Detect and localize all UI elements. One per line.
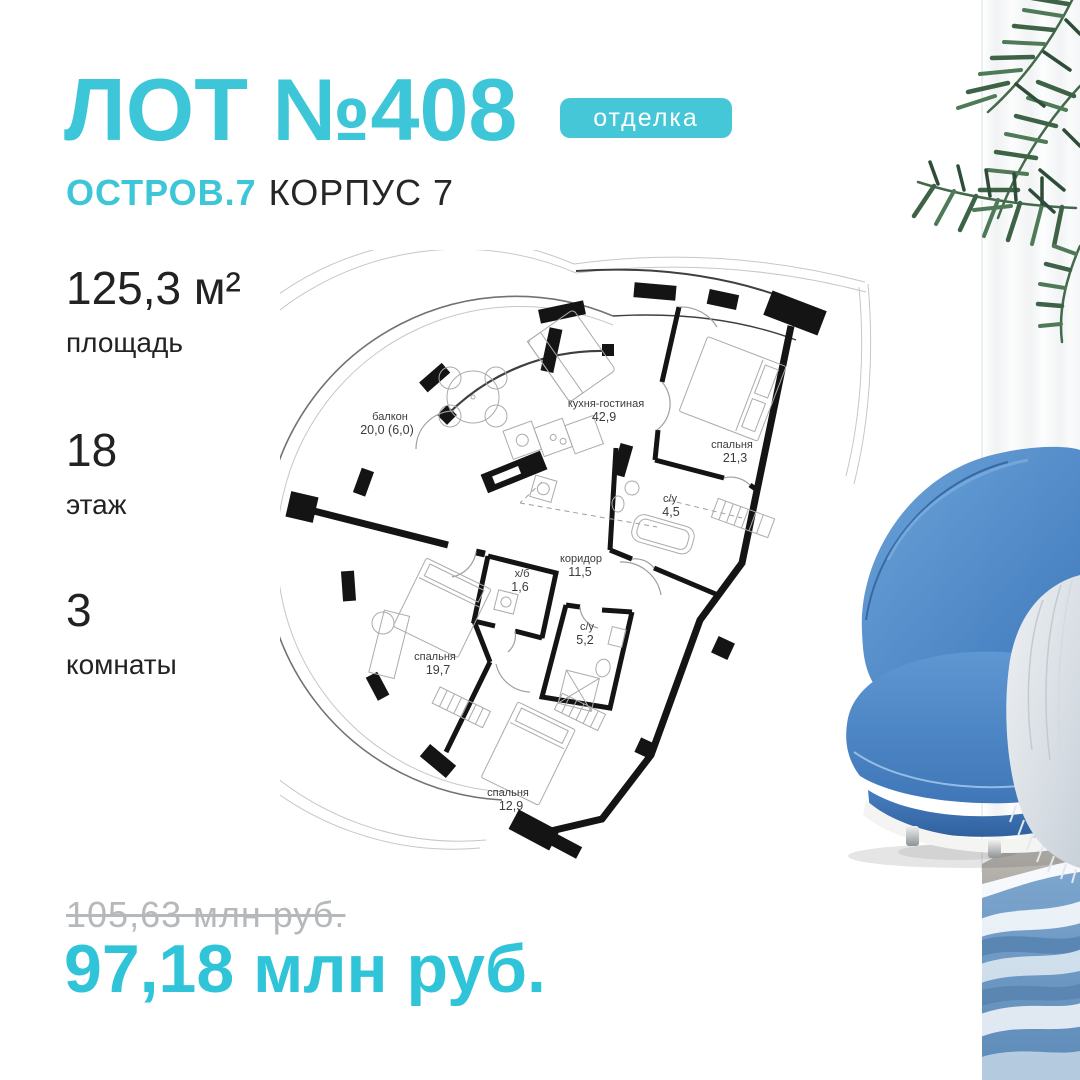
- room-area-bath1: 4,5: [662, 505, 679, 519]
- stat-floor-value: 18: [66, 424, 126, 477]
- floorplan-labels: балкон 20,0 (6,0) кухня-гостиная 42,9 сп…: [360, 398, 753, 813]
- room-label-balcony: балкон: [372, 411, 408, 423]
- rug: [978, 856, 1080, 1080]
- floorplan-partitions: [446, 307, 757, 752]
- room-area-bath2: 5,2: [576, 633, 593, 647]
- room-label-bedroom1: спальня: [711, 439, 753, 451]
- room-area-kitchen: 42,9: [592, 410, 616, 424]
- stat-area-label: площадь: [66, 327, 241, 359]
- project-name: ОСТРОВ.7: [66, 172, 257, 213]
- room-area-closet: 1,6: [511, 580, 528, 594]
- listing-card: ЛОТ №408 отделка ОСТРОВ.7КОРПУС 7 125,3 …: [0, 0, 1080, 1080]
- stat-area: 125,3 м² площадь: [66, 262, 241, 359]
- room-area-corridor: 11,5: [568, 565, 591, 579]
- breadcrumb: ОСТРОВ.7КОРПУС 7: [66, 172, 454, 214]
- finish-badge-label: отделка: [593, 104, 699, 133]
- room-area-bedroom1: 21,3: [723, 451, 747, 465]
- floorplan: балкон 20,0 (6,0) кухня-гостиная 42,9 сп…: [280, 250, 880, 890]
- page-title: ЛОТ №408: [64, 66, 517, 154]
- armchair-leg: [906, 826, 919, 846]
- room-label-closet: х/б: [515, 568, 530, 580]
- room-label-corridor: коридор: [560, 553, 602, 565]
- room-label-kitchen: кухня-гостиная: [568, 398, 644, 410]
- stat-floor-label: этаж: [66, 489, 126, 521]
- room-label-bath1: с/у: [663, 493, 678, 505]
- interior-photo: [818, 0, 1080, 1080]
- room-label-bath2: с/у: [580, 621, 595, 633]
- room-area-bedroom3: 12,9: [499, 799, 523, 813]
- stat-rooms-label: комнаты: [66, 649, 177, 681]
- room-label-bedroom3: спальня: [487, 787, 529, 799]
- stat-floor: 18 этаж: [66, 424, 126, 521]
- stat-rooms-value: 3: [66, 584, 177, 637]
- room-area-bedroom2: 19,7: [426, 663, 450, 677]
- room-label-bedroom2: спальня: [414, 651, 456, 663]
- finish-badge: отделка: [560, 98, 732, 138]
- armchair-leg: [988, 840, 1001, 858]
- current-price: 97,18 млн руб.: [64, 930, 546, 1008]
- stat-rooms: 3 комнаты: [66, 584, 177, 681]
- room-area-balcony: 20,0 (6,0): [360, 423, 414, 437]
- floorplan-dashed-lines: [520, 482, 742, 527]
- building-name: КОРПУС 7: [269, 172, 454, 213]
- stat-area-value: 125,3 м²: [66, 262, 241, 315]
- floorplan-building-outline: [280, 250, 871, 849]
